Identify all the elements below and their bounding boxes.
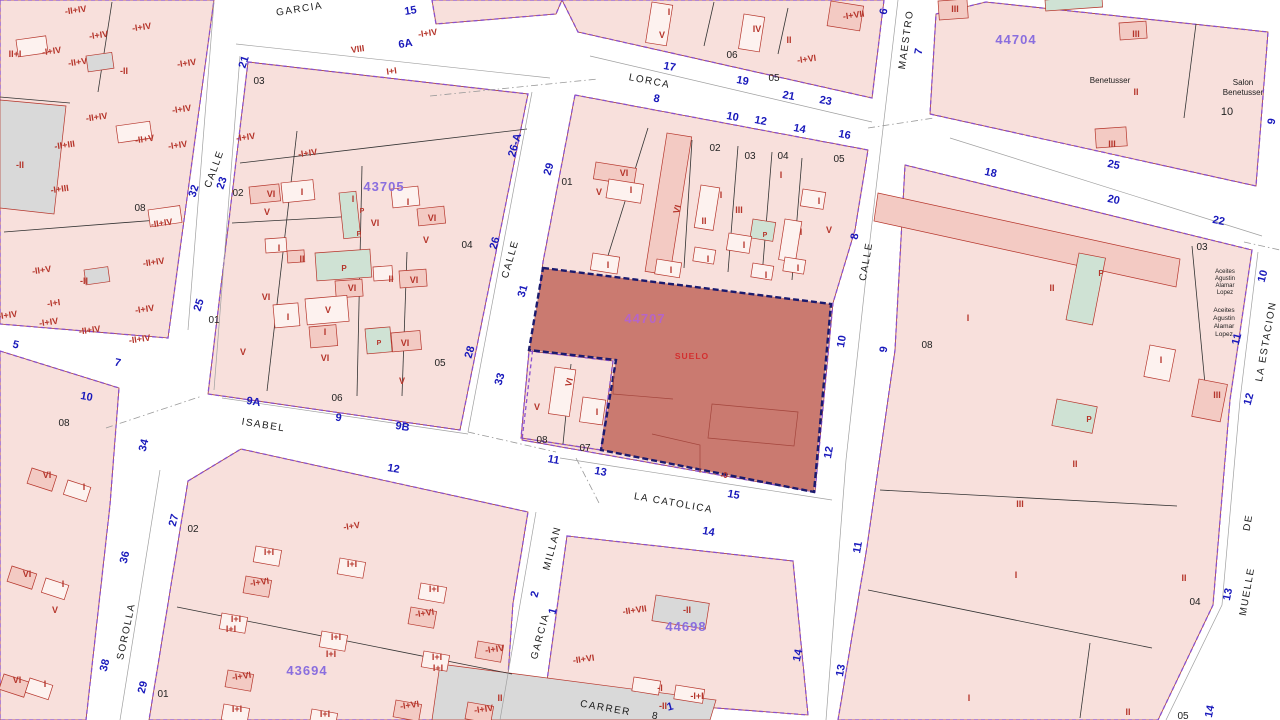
building-height-label: VI: [321, 353, 330, 363]
building-height-label: I: [596, 407, 599, 417]
building-footprint: [580, 397, 606, 425]
building-height-label: IV: [753, 24, 762, 34]
building-height-label: I: [44, 679, 47, 689]
street-name-label: MUELLE: [1238, 566, 1257, 616]
street-number-label: 29: [136, 680, 151, 695]
building-height-label: III: [1132, 29, 1140, 39]
building-height-label: II: [1181, 573, 1186, 583]
street-number-label: 15: [404, 4, 418, 18]
parcel-number-label: 02: [232, 188, 244, 199]
street-name-label: MAESTRO: [897, 9, 916, 70]
street-number-label: 14: [701, 525, 716, 539]
street-name-label: LA ESTACION: [1254, 301, 1279, 383]
street-number-label: 6: [878, 7, 891, 15]
patio: [1045, 0, 1103, 11]
city-block[interactable]: [432, 0, 562, 24]
building-height-label: I: [765, 270, 768, 280]
building-height-label: II: [299, 254, 304, 264]
parcel-number-label: 01: [157, 689, 169, 700]
street-number-label: 7: [913, 47, 926, 55]
street-number-label: 5: [11, 339, 20, 352]
building-height-label: I: [301, 187, 304, 197]
block-id-label: 44698: [665, 619, 706, 634]
building-height-label: P: [1098, 269, 1104, 278]
building-footprint: [726, 233, 751, 253]
building-height-label: I+I: [433, 663, 443, 673]
place-name-label: Alamar: [1215, 283, 1234, 289]
block-id-label: 43694: [286, 663, 327, 678]
parcel-number-label: 01: [561, 177, 573, 188]
building-height-label: I: [287, 312, 290, 322]
building-height-label: I+I: [386, 65, 398, 76]
building-height-label: III: [1108, 139, 1116, 149]
building-height-label: II: [388, 274, 393, 284]
street-number-label: 22: [1211, 214, 1225, 228]
building-height-label: I: [1015, 570, 1018, 580]
parcel-number-label: 03: [1196, 242, 1208, 253]
place-name-label: Aceites: [1215, 269, 1235, 275]
building-height-label: VI: [401, 338, 410, 348]
street-number-label: 8: [849, 232, 862, 240]
street-number-label: 10: [725, 110, 739, 124]
building-height-label: I: [407, 197, 410, 207]
street-number-label: 33: [493, 372, 508, 387]
building-height-label: I: [967, 313, 970, 323]
building-height-label: I: [630, 185, 633, 195]
street-name-label: ISABEL: [241, 417, 286, 435]
building-height-label: VI: [410, 275, 419, 285]
building-height-label: I+I: [320, 709, 330, 719]
street-number-label: 14: [792, 122, 807, 136]
place-name-label: Salon: [1233, 78, 1253, 87]
building-height-label: V: [52, 605, 58, 615]
building-height-label: I: [720, 190, 723, 200]
building-height-label: V: [596, 187, 602, 197]
street-number-label: 12: [822, 445, 836, 459]
parcel-number-label: 08: [921, 340, 933, 351]
street-number-label: 23: [215, 175, 230, 190]
street-number-label: 21: [781, 89, 795, 103]
building-footprint: [0, 100, 66, 214]
street-number-label: 10: [835, 334, 849, 348]
building-height-label: -0: [720, 471, 728, 480]
street-number-label: 12: [1242, 392, 1257, 407]
building-height-label: I+I: [347, 559, 357, 569]
building-height-label: I: [818, 196, 821, 206]
place-name-label: Aceites: [1213, 307, 1235, 314]
street-name-label: GARCIA: [529, 612, 552, 661]
building-height-label: -II: [120, 66, 128, 76]
building-height-label: VI: [23, 569, 32, 579]
building-footprint: [693, 247, 716, 264]
building-height-label: -I+I: [690, 691, 703, 701]
place-name-label: Lopez: [1215, 331, 1233, 338]
building-height-label: P: [360, 208, 365, 215]
street-number-label: 8: [652, 93, 660, 106]
building-height-label: I: [743, 240, 746, 250]
building-height-label: II: [701, 216, 706, 226]
building-height-label: I: [62, 579, 65, 589]
building-footprint: [800, 189, 825, 209]
building-height-label: I+I: [432, 652, 442, 662]
building-height-label: VIII: [350, 43, 365, 55]
street-number-label: 13: [1221, 587, 1235, 601]
parcel-number-label: 07: [579, 443, 591, 454]
building-height-label: I: [968, 693, 971, 703]
building-height-label: P: [357, 231, 362, 238]
street-number-label: 12: [753, 114, 767, 128]
building-height-label: VI: [43, 470, 52, 480]
street-number-label: 34: [137, 437, 152, 453]
parcel-number-label: 05: [768, 73, 780, 84]
street-number-label: 36: [118, 550, 133, 565]
building-height-label: I+I: [232, 704, 242, 714]
parcel-number-label: 04: [777, 151, 789, 162]
cadastral-map[interactable]: GARCIALORCACALLECALLECALLEMAESTROISABELS…: [0, 0, 1280, 720]
building-height-label: P: [763, 232, 768, 239]
street-number-label: 38: [98, 658, 113, 673]
street-number-label: 11: [547, 453, 561, 467]
parcel-number-label: 02: [187, 524, 199, 535]
street-number-label: 17: [662, 60, 676, 74]
building-height-label: P: [1086, 415, 1092, 424]
parcel-number-label: 06: [726, 50, 738, 61]
building-footprint: [783, 257, 806, 274]
building-height-label: II: [1049, 283, 1054, 293]
parcel-number-label: 04: [461, 240, 473, 251]
building-height-label: V: [423, 235, 429, 245]
building-height-label: III: [951, 4, 959, 14]
parcel-number-label: 02: [709, 143, 721, 154]
building-height-label: VI: [267, 189, 276, 199]
street-name-label: CALLE: [858, 241, 876, 282]
building-height-label: I+I: [226, 624, 236, 634]
building-height-label: I+I: [264, 547, 274, 557]
street-number-label: 19: [735, 74, 749, 88]
place-name-label: Alamar: [1214, 323, 1235, 330]
building-height-label: II: [786, 35, 791, 45]
building-height-label: V: [240, 347, 246, 357]
parcel-number-label: 05: [1177, 711, 1189, 720]
building-height-label: II: [497, 693, 502, 703]
building-height-label: -II+IV: [128, 333, 151, 346]
parcel-number-label: 08: [134, 203, 146, 214]
building-height-label: -II: [16, 160, 24, 170]
map-viewport[interactable]: GARCIALORCACALLECALLECALLEMAESTROISABELS…: [0, 0, 1280, 720]
street-number-label: 25: [192, 297, 207, 312]
building-height-label: -II+IV: [78, 324, 101, 337]
building-height-label: -II: [80, 276, 88, 286]
block-id-label: 43705: [363, 179, 404, 194]
place-name-label: Agustin: [1213, 315, 1235, 322]
building-height-label: V: [534, 402, 540, 412]
building-footprint: [281, 180, 315, 203]
place-name-label: Lopez: [1217, 290, 1233, 296]
street-number-label: 18: [983, 166, 997, 180]
building-height-label: -I+IV: [417, 27, 437, 40]
parcel-number-label: 04: [1189, 597, 1201, 608]
building-height-label: -I+I: [46, 297, 61, 309]
street-number-label: 14: [791, 647, 805, 662]
building-height-label: III: [735, 205, 743, 215]
highlighted-parcel-id: 44707: [624, 311, 665, 326]
building-height-label: III: [1213, 390, 1221, 400]
highlighted-parcel-status: SUELO: [675, 351, 709, 361]
building-height-label: I: [1160, 355, 1163, 365]
building-height-label: I+I: [331, 632, 341, 642]
building-height-label: I: [607, 260, 610, 270]
building-height-label: -II: [683, 605, 691, 615]
street-name-label: LORCA: [628, 72, 671, 91]
street-number-label: 27: [167, 513, 182, 528]
street-number-label: 9: [878, 345, 891, 353]
building-height-label: VI: [262, 292, 271, 302]
building-height-label: I: [797, 263, 800, 273]
street-number-label: 13: [834, 663, 848, 677]
building-height-label: P: [341, 264, 347, 273]
building-height-label: III: [1016, 499, 1024, 509]
building-height-label: V: [399, 376, 405, 386]
building-height-label: V: [826, 225, 832, 235]
building-height-label: I: [278, 243, 281, 253]
building-height-label: I: [800, 227, 803, 237]
street-number-label: 29: [542, 162, 557, 177]
city-block-44704[interactable]: [930, 2, 1268, 186]
building-height-label: I+I: [429, 584, 439, 594]
building-height-label: VI: [348, 283, 357, 293]
parcel-number-label: 05: [434, 358, 446, 369]
parcel-number-label: 06: [331, 393, 343, 404]
street-number-label: 9: [335, 412, 343, 425]
building-height-label: II+I: [9, 49, 22, 59]
building-height-label: I+I: [231, 614, 241, 624]
street-number-label: 13: [593, 465, 607, 479]
building-footprint: [249, 184, 281, 204]
parcel-number-label: 03: [744, 151, 756, 162]
building-height-label: VI: [428, 213, 437, 223]
street-number-label: 6A: [398, 37, 414, 51]
street-number-label: 7: [113, 357, 121, 370]
building-footprint: [751, 263, 774, 280]
building-height-label: VI: [371, 218, 380, 228]
building-height-label: V: [264, 207, 270, 217]
street-name-label: SOROLLA: [115, 602, 138, 661]
building-footprint: [86, 52, 114, 71]
building-height-label: II: [1133, 87, 1138, 97]
place-name-label: Benetusser: [1223, 88, 1264, 97]
block-id-label: 44704: [995, 32, 1036, 47]
parcel-number-label: 01: [208, 315, 220, 326]
place-name-label: Agustin: [1215, 276, 1235, 282]
street-number-label: 10: [79, 390, 93, 404]
building-height-label: I: [670, 265, 673, 275]
street-number-label: 25: [1106, 158, 1120, 172]
building-height-label: I: [352, 194, 355, 204]
building-height-label: II: [1125, 707, 1130, 717]
building-height-label: I: [83, 482, 86, 492]
parcel-number-label: 03: [253, 76, 265, 87]
parcel-number-label: 05: [833, 154, 845, 165]
street-number-label: 26: [488, 236, 503, 251]
building-height-label: II: [1072, 459, 1077, 469]
street-number-label: 16: [837, 128, 851, 142]
street-number-label: 15: [726, 488, 740, 502]
street-name-label: DE: [1242, 513, 1256, 532]
street-number-label: 23: [818, 94, 832, 108]
city-block-43705[interactable]: [208, 62, 528, 430]
building-height-label: P: [377, 340, 382, 347]
building-height-label: -II: [659, 701, 667, 711]
building-height-label: VI: [13, 675, 22, 685]
place-name-label: Benetusser: [1090, 76, 1131, 85]
street-number-label: 11: [851, 541, 865, 555]
street-number-label: 14: [1203, 703, 1217, 718]
street-name-label: MILLAN: [541, 525, 563, 571]
street-name-label: GARCIA: [275, 0, 323, 18]
street-number-label: 10: [1256, 269, 1271, 284]
building-height-label: I: [668, 7, 671, 17]
street-number-label: 2: [529, 590, 542, 599]
building-footprint: [265, 238, 287, 253]
building-height-label: I: [707, 254, 710, 264]
building-height-label: I+I: [326, 649, 336, 659]
street-number-label: 31: [516, 284, 531, 299]
street-name-label: 8: [651, 711, 660, 720]
building-height-label: -I: [657, 683, 663, 693]
street-number-label: 9B: [395, 420, 411, 434]
building-height-label: I: [780, 170, 783, 180]
street-number-label: 9A: [246, 395, 262, 409]
building-height-label: VI: [620, 168, 629, 178]
building-height-label: I: [324, 327, 327, 337]
building-height-label: V: [325, 305, 331, 315]
street-number-label: 20: [1106, 193, 1120, 207]
parcel-number-label: 08: [536, 435, 548, 446]
building-height-label: V: [659, 30, 665, 40]
parcel-number-label: 10: [1221, 106, 1233, 118]
parcel-number-label: 08: [58, 418, 70, 429]
street-number-label: 9: [1266, 117, 1279, 125]
street-number-label: 12: [386, 462, 400, 476]
street-name-label: LA CATOLICA: [633, 491, 714, 516]
